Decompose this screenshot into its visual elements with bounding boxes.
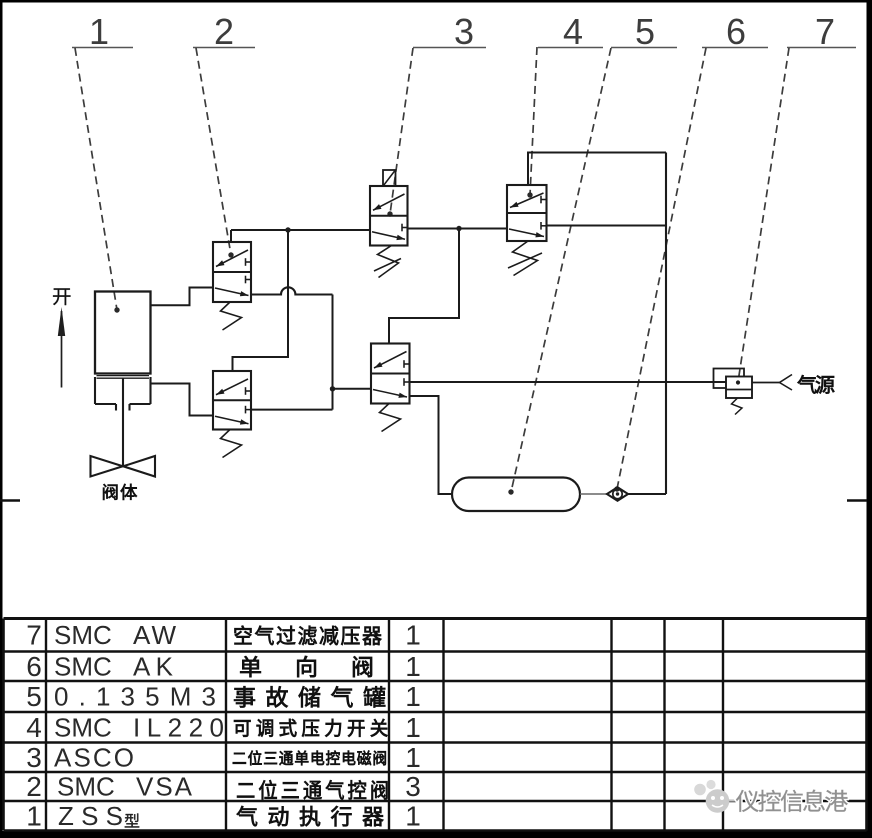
svg-text:2: 2	[26, 771, 42, 802]
svg-text:SMC: SMC	[57, 772, 115, 802]
svg-text:2: 2	[214, 11, 234, 52]
svg-text:1: 1	[405, 712, 421, 743]
svg-text:5: 5	[635, 11, 655, 52]
svg-text:1: 1	[89, 11, 109, 52]
svg-text:3: 3	[26, 742, 42, 773]
svg-text:VSA: VSA	[136, 772, 193, 802]
svg-text:6: 6	[26, 651, 42, 682]
svg-text:SMC: SMC	[54, 712, 112, 742]
svg-text:AK: AK	[133, 651, 174, 681]
svg-text:4: 4	[563, 11, 583, 52]
svg-text:7: 7	[815, 11, 835, 52]
svg-text:3: 3	[405, 771, 421, 802]
svg-text:ZSS: ZSS	[58, 801, 123, 831]
svg-text:6: 6	[726, 11, 746, 52]
svg-text:SMC: SMC	[54, 620, 112, 650]
svg-text:SMC: SMC	[54, 651, 112, 681]
svg-text:1: 1	[405, 681, 421, 712]
svg-text:1: 1	[405, 620, 421, 651]
svg-text:ASCO: ASCO	[54, 742, 134, 772]
svg-text:0.135M3: 0.135M3	[54, 682, 216, 712]
svg-text:1: 1	[405, 651, 421, 682]
svg-text:1: 1	[405, 742, 421, 773]
svg-text:AW: AW	[133, 620, 176, 650]
svg-text:1: 1	[405, 800, 421, 831]
svg-text:1: 1	[26, 800, 42, 831]
svg-text:IL220: IL220	[133, 712, 224, 742]
svg-text:5: 5	[26, 681, 42, 712]
svg-text:3: 3	[454, 11, 474, 52]
svg-text:7: 7	[26, 620, 42, 651]
svg-text:4: 4	[26, 712, 42, 743]
